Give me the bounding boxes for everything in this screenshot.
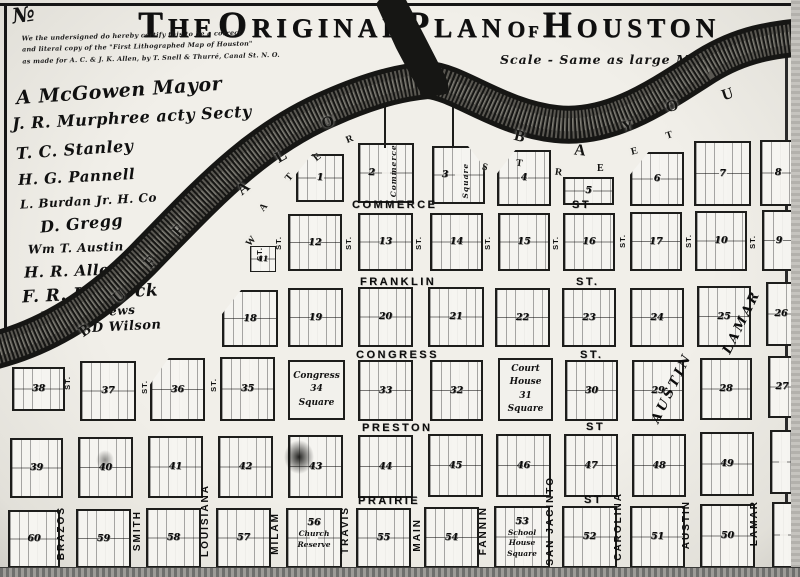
st-abbrev-label: ST. [684,234,693,248]
city-block: 44 [358,435,413,498]
public-square-block: Court House31Square [498,358,553,421]
square-label-line: Reserve [297,540,330,551]
city-block: 48 [632,434,686,497]
city-block: 49 [700,432,754,496]
city-block: 46 [496,434,551,497]
street-label-main: MAIN [412,518,423,552]
block-number: 9 [764,234,794,245]
street-label-carolina: CAROLINA [613,492,624,561]
city-block: 16 [563,213,615,271]
reserve-block: 56ChurchReserve [286,508,342,568]
city-block: 18 [222,290,278,347]
scan-edge-right [791,0,800,577]
block-number: 20 [360,311,411,322]
city-block: 58 [146,508,201,568]
city-block: 23 [562,288,616,347]
water-street-lettering: R [554,167,563,179]
city-block: 60 [8,510,60,568]
block-number: 33 [360,384,411,395]
square-label-line: Square [299,397,335,411]
corner-mark: № [10,1,36,29]
buffalo-lettering: F [169,221,189,240]
water-street-lettering: S [481,161,489,173]
street-label-louisiana: LOUISIANA [200,484,211,557]
street-label-milam: MILAM [270,512,281,555]
block-vertical-label: Commerce [389,148,398,197]
city-block: 17 [630,212,682,271]
block-number: 24 [632,311,682,322]
block-number: 44 [360,460,411,471]
city-block: 33 [358,360,413,421]
water-street-lettering: T [664,129,674,142]
city-block: 28 [700,358,752,420]
block-number: 5 [565,185,612,196]
signature: L. Burdan Jr. H. Co [20,190,158,211]
city-block: 57 [216,508,271,568]
block-number: 22 [497,311,548,322]
title-word: of [507,17,541,43]
bayou-lettering: Y [620,117,635,137]
block-number: 6 [632,173,682,184]
st-abbrev-label: ST. [255,247,264,261]
city-block: 59 [76,509,131,568]
square-label: ChurchReserve [288,529,340,550]
city-block: 24 [630,288,684,347]
block-number: 13 [360,236,411,247]
block-number: 32 [432,384,481,395]
block-number: 46 [498,459,549,470]
block-number: 21 [430,311,482,322]
map-canvas: № TheOriginalPlanofHouston We the unders… [0,0,800,577]
block-number: 23 [564,311,614,322]
city-block: 4 [497,150,551,206]
city-block: 7 [694,141,751,206]
city-block: 10 [695,211,747,271]
block-number: 48 [634,459,684,470]
square-label: Congress34Square [290,362,343,418]
city-block: 6 [630,152,684,206]
block-number: 45 [430,459,481,470]
scale-note: Scale - Same as large Map [500,52,710,67]
st-abbrev-label: ST. [140,380,149,394]
scan-edge-bottom [0,567,800,577]
street-label-austin: AUSTIN [681,500,692,549]
signature: D. Gregg [39,210,123,236]
block-number: 56 [288,517,340,528]
water-street-lettering: T [283,171,296,183]
block-number: 15 [500,236,548,247]
city-block: 50 [700,504,755,568]
city-block: 35 [220,357,275,421]
city-block: 3Square [432,146,485,204]
city-block: 30 [565,360,618,421]
block-number: 49 [702,458,752,469]
bayou-lettering: B [512,127,527,147]
square-label-line: Congress [293,370,340,384]
title-word: Houston [543,4,720,47]
water-street-lettering: E [597,163,604,174]
city-block: 19 [288,288,343,347]
square-label-line: Court House [500,363,551,390]
block-number: 4 [499,172,549,183]
street-label-lamar: LAMAR [749,500,760,546]
block-number: 12 [290,236,340,247]
bayou-lettering: O [664,97,681,118]
reserve-block: 53School HouseSquare [494,506,550,568]
city-block: 14 [430,213,483,271]
block-number: 8 [762,167,794,178]
block-number: 14 [432,236,481,247]
st-abbrev-label: ST. [274,236,283,250]
bayou-lettering: A [573,141,586,160]
block-number: 38 [14,383,63,394]
block-number: 10 [697,235,745,246]
square-label-line: 31 [519,390,532,404]
block-number: 41 [150,461,201,472]
buffalo-lettering: A [234,178,254,199]
street-label-prairie: PRAIRIE [358,495,420,507]
block-number: 35 [222,383,273,394]
square-label-line: 34 [310,383,323,397]
block-number: 47 [566,459,616,470]
water-street-lettering: E [630,145,639,157]
signature: T. C. Stanley [15,136,134,163]
buffalo-lettering: L [272,147,290,168]
square-label-line: Church [299,529,330,540]
street-label-st: ST. [580,349,603,361]
block-number: 30 [567,384,616,395]
block-number: 1 [298,172,342,183]
wharf-lane-mark [384,104,386,148]
city-block: 42 [218,436,273,498]
block-number: 50 [702,530,753,541]
block-vertical-label: Square [461,151,470,199]
signature: H. G. Pannell [18,165,136,189]
block-number: 57 [218,532,269,543]
block-number: 17 [632,235,680,246]
city-block: 20 [358,287,413,347]
city-block: 15 [498,213,550,271]
city-block: 12 [288,214,342,271]
buffalo-lettering: F [141,253,161,273]
city-block: 22 [495,288,550,347]
city-block: 52 [562,506,617,568]
street-label-franklin: FRANKLIN [360,276,436,288]
street-label-fannin: FANNIN [478,506,489,555]
city-block: 54 [424,507,479,568]
street-label-st: ST [572,199,591,211]
water-street-lettering: T [515,158,523,170]
block-number: 55 [358,532,409,543]
st-abbrev-label: ST. [209,378,218,392]
st-abbrev-label: ST. [414,236,423,250]
street-label-brazos: BRAZOS [56,506,67,560]
city-block: 21 [428,287,484,347]
city-block: 39 [10,438,63,498]
certification-text: We the undersigned do hereby certify thi… [22,26,291,67]
map-border-left [4,3,7,337]
block-number: 58 [148,532,199,543]
st-abbrev-label: ST. [551,236,560,250]
st-abbrev-label: ST. [748,235,757,249]
block-number: 51 [632,531,683,542]
city-block: 47 [564,434,618,497]
street-label-smith: SMITH [132,510,143,551]
block-number: 54 [426,531,477,542]
bayou-lettering: U [720,85,737,106]
block-number: 28 [702,383,750,394]
block-number: 42 [220,461,271,472]
city-block: 36 [150,358,205,421]
square-label: School HouseSquare [496,528,548,560]
signature: A McGowen Mayor [15,73,222,109]
street-label-commerce: COMMERCE [352,199,437,211]
street-label-travis: TRAVIS [340,506,351,554]
city-block: 2Commerce [358,143,414,203]
st-abbrev-label: ST. [483,236,492,250]
city-block: 45 [428,434,483,497]
st-abbrev-label: ST. [344,236,353,250]
street-label-sanjacinto: SAN JACINTO [545,476,556,566]
st-abbrev-label: ST. [63,376,72,390]
signature: H. R. Allen [24,260,121,281]
ink-smudge [284,440,314,474]
buffalo-lettering: O [320,113,337,134]
block-number: 16 [565,236,613,247]
signature: F. R. Lubbock [22,280,159,307]
block-number: 3 [434,169,456,180]
st-abbrev-label: ST. [618,234,627,248]
city-block: 55 [356,508,411,568]
city-block: 37 [80,361,136,421]
street-label-st: ST. [576,276,599,288]
square-label-line: Square [507,549,537,560]
square-label-line: School House [496,528,548,549]
block-number: 60 [10,533,58,544]
city-block: 13 [358,213,413,271]
block-number: 37 [82,385,134,396]
block-number: 39 [12,462,61,473]
title-word: Plan [406,4,506,47]
city-block: 51 [630,506,685,568]
street-label-st: ST [584,494,603,506]
block-number: 52 [564,531,615,542]
ink-smudge [96,450,114,470]
city-block: 32 [430,360,483,421]
city-block: 41 [148,436,203,498]
public-square-block: Congress34Square [288,360,345,420]
square-label: Court House31Square [500,360,551,419]
block-number: 59 [78,532,129,543]
block-number: 19 [290,311,341,322]
wharf-lane-mark [452,98,454,148]
street-label-congress: CONGRESS [356,349,439,361]
water-street-lettering: A [257,201,270,213]
block-number: 53 [496,516,548,527]
signature: Wm T. Austin [28,239,124,256]
block-number: 7 [696,167,749,178]
block-number: 2 [360,167,383,178]
water-street-lettering: R [344,133,355,146]
street-label-st: ST [586,421,605,433]
block-number: 18 [224,312,276,323]
block-number: 36 [152,383,203,394]
square-label-line: Square [508,403,544,417]
street-label-preston: PRESTON [362,422,432,434]
city-block: 38 [12,367,65,411]
